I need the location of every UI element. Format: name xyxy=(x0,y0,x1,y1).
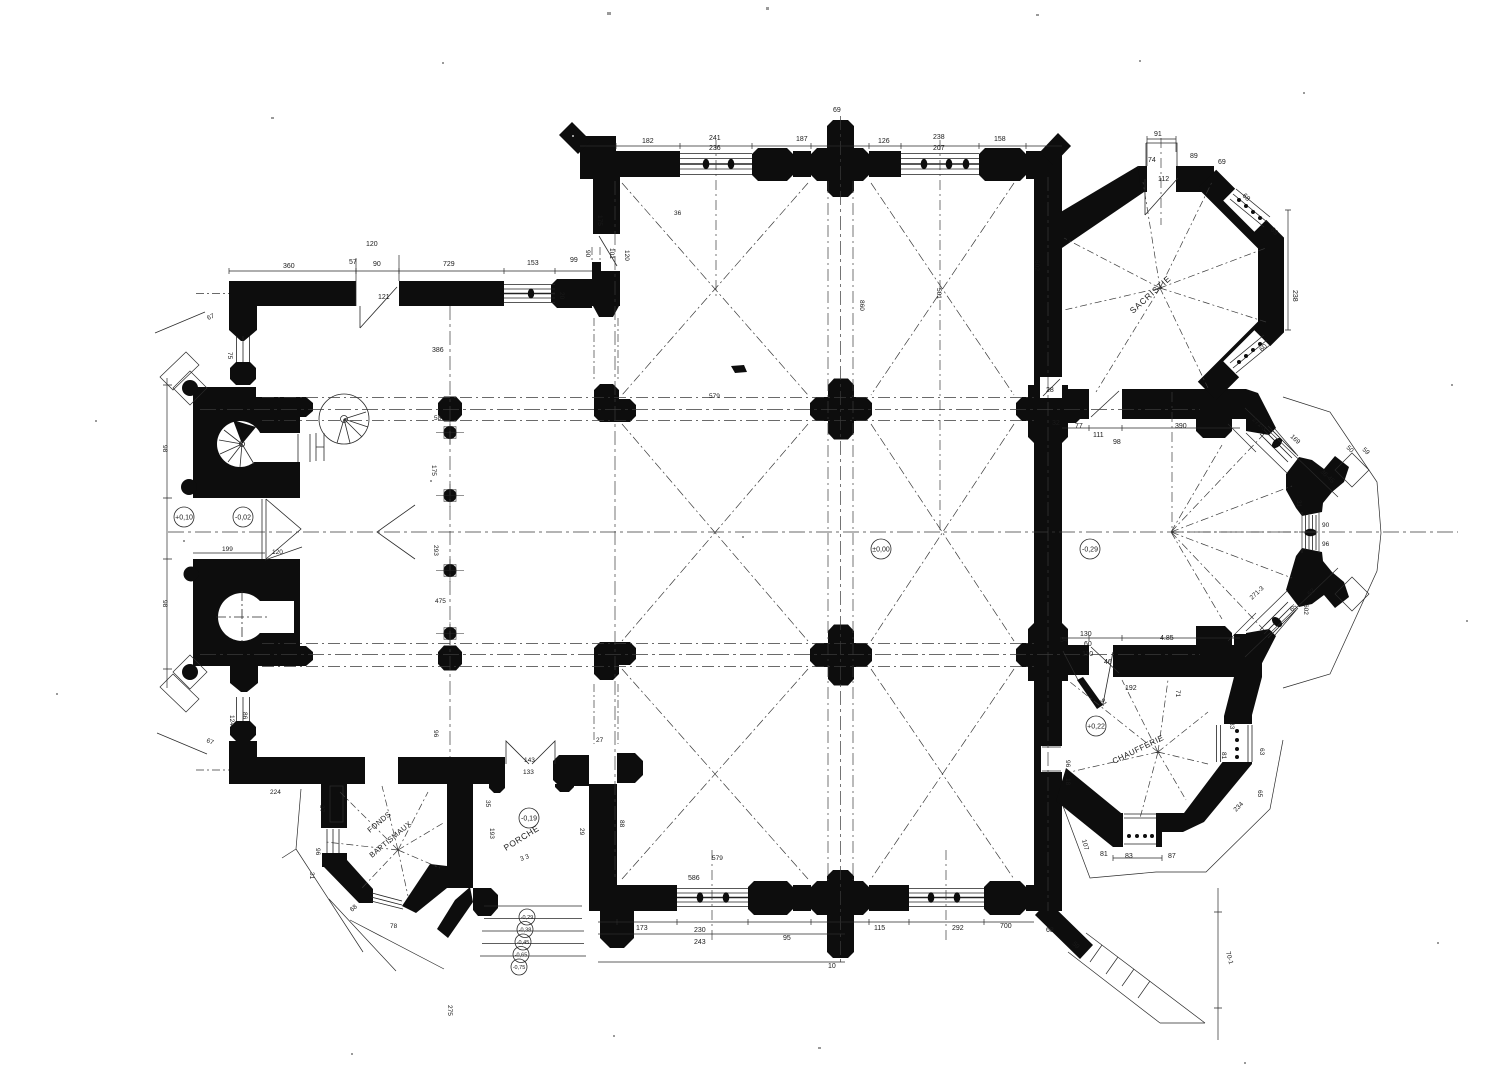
svg-text:243: 243 xyxy=(694,939,706,946)
svg-text:74: 74 xyxy=(1148,157,1156,164)
svg-text:46: 46 xyxy=(1104,659,1112,666)
svg-text:124: 124 xyxy=(228,715,235,726)
svg-text:67: 67 xyxy=(205,737,215,746)
svg-text:83: 83 xyxy=(1125,853,1133,860)
svg-text:602: 602 xyxy=(1033,260,1040,271)
svg-text:95: 95 xyxy=(783,935,791,942)
svg-text:115: 115 xyxy=(874,925,885,932)
svg-text:293: 293 xyxy=(432,545,439,556)
svg-text:241: 241 xyxy=(709,135,721,142)
svg-text:501: 501 xyxy=(935,288,942,299)
svg-text:81: 81 xyxy=(1100,851,1108,858)
svg-text:386: 386 xyxy=(432,347,444,354)
svg-text:54: 54 xyxy=(1060,637,1068,644)
svg-text:-0,29: -0,29 xyxy=(1082,547,1098,554)
svg-text:107: 107 xyxy=(1080,839,1090,852)
svg-text:+0,10: +0,10 xyxy=(175,515,193,522)
svg-text:27: 27 xyxy=(596,737,604,744)
svg-text:158: 158 xyxy=(994,136,1006,143)
svg-text:96: 96 xyxy=(314,848,321,856)
svg-text:70-1: 70-1 xyxy=(1224,951,1234,966)
svg-text:579: 579 xyxy=(712,855,723,862)
svg-text:-0,45: -0,45 xyxy=(517,940,530,946)
svg-text:120: 120 xyxy=(623,250,630,261)
svg-text:96: 96 xyxy=(1064,760,1071,768)
svg-text:133: 133 xyxy=(523,769,534,776)
svg-text:234: 234 xyxy=(1232,801,1245,814)
svg-text:90: 90 xyxy=(584,250,591,258)
svg-text:+0,22: +0,22 xyxy=(1087,724,1105,731)
svg-text:120: 120 xyxy=(366,241,378,248)
svg-text:175: 175 xyxy=(430,465,437,476)
svg-text:4.85: 4.85 xyxy=(1160,635,1174,642)
svg-text:120: 120 xyxy=(272,549,283,556)
svg-text:182: 182 xyxy=(642,138,654,145)
svg-text:860: 860 xyxy=(858,300,865,311)
svg-text:60: 60 xyxy=(1084,641,1092,648)
svg-text:110: 110 xyxy=(1082,651,1093,658)
svg-text:-0,19: -0,19 xyxy=(521,816,537,823)
svg-text:-0,38: -0,38 xyxy=(519,928,532,934)
svg-text:121: 121 xyxy=(378,294,390,301)
svg-text:111: 111 xyxy=(1093,432,1104,439)
svg-text:81: 81 xyxy=(1220,752,1227,760)
svg-text:28: 28 xyxy=(1046,387,1054,394)
svg-text:143: 143 xyxy=(524,757,535,764)
svg-text:98: 98 xyxy=(161,445,168,453)
svg-text:586: 586 xyxy=(688,875,700,882)
svg-text:729: 729 xyxy=(443,261,455,268)
svg-text:87: 87 xyxy=(1168,853,1176,860)
svg-text:-0,02: -0,02 xyxy=(235,515,251,522)
svg-text:50: 50 xyxy=(1345,444,1355,454)
svg-text:CHAUFFERIE: CHAUFFERIE xyxy=(1111,733,1165,766)
svg-text:35: 35 xyxy=(484,800,491,808)
svg-text:475: 475 xyxy=(435,598,446,605)
svg-text:360: 360 xyxy=(283,263,295,270)
svg-text:91: 91 xyxy=(1154,131,1162,138)
svg-text:292: 292 xyxy=(952,925,964,932)
svg-text:199: 199 xyxy=(222,546,233,553)
svg-text:90: 90 xyxy=(1322,522,1330,529)
svg-text:192: 192 xyxy=(1125,685,1137,692)
svg-text:193: 193 xyxy=(488,828,495,839)
svg-text:-0,29: -0,29 xyxy=(521,915,534,921)
svg-text:-0,75: -0,75 xyxy=(513,965,526,971)
svg-text:69: 69 xyxy=(833,107,841,114)
svg-text:68: 68 xyxy=(1046,927,1054,934)
svg-text:275: 275 xyxy=(446,1005,453,1016)
svg-text:68: 68 xyxy=(349,903,359,913)
svg-text:31: 31 xyxy=(308,872,315,880)
svg-text:96: 96 xyxy=(1322,541,1330,548)
svg-text:36: 36 xyxy=(674,210,682,217)
svg-text:238: 238 xyxy=(933,134,945,141)
svg-text:78: 78 xyxy=(390,923,398,930)
svg-text:238: 238 xyxy=(1291,290,1298,302)
svg-text:77: 77 xyxy=(1075,423,1083,430)
svg-text:700: 700 xyxy=(1000,923,1012,930)
svg-text:59: 59 xyxy=(1361,446,1371,456)
svg-text:96: 96 xyxy=(432,730,439,738)
svg-text:3 3: 3 3 xyxy=(519,853,530,863)
svg-text:90: 90 xyxy=(373,261,381,268)
svg-text:SACRISTIE: SACRISTIE xyxy=(1128,273,1173,315)
svg-text:89: 89 xyxy=(1190,153,1198,160)
svg-text:126: 126 xyxy=(878,138,890,145)
svg-text:67: 67 xyxy=(206,313,216,322)
svg-text:58: 58 xyxy=(434,415,442,422)
svg-text:101: 101 xyxy=(608,248,615,259)
svg-text:175: 175 xyxy=(596,215,603,226)
svg-text:37: 37 xyxy=(318,805,325,813)
svg-text:271-3: 271-3 xyxy=(1249,585,1266,602)
svg-text:207: 207 xyxy=(933,145,945,152)
svg-text:86: 86 xyxy=(241,712,248,720)
svg-text:98: 98 xyxy=(1113,439,1121,446)
svg-text:602: 602 xyxy=(1302,604,1309,615)
svg-text:18: 18 xyxy=(1064,778,1071,786)
svg-text:187: 187 xyxy=(796,136,808,143)
svg-text:20: 20 xyxy=(558,292,565,300)
svg-text:98: 98 xyxy=(161,600,168,608)
svg-text:69: 69 xyxy=(1218,159,1226,166)
svg-text:71: 71 xyxy=(1174,690,1181,698)
svg-text:99: 99 xyxy=(570,257,578,264)
svg-text:63: 63 xyxy=(1258,748,1265,756)
svg-text:130: 130 xyxy=(1080,631,1092,638)
svg-text:31: 31 xyxy=(1295,500,1302,508)
svg-text:579: 579 xyxy=(709,393,720,400)
svg-text:88: 88 xyxy=(618,820,625,828)
svg-text:PORCHE: PORCHE xyxy=(502,823,541,853)
svg-text:390: 390 xyxy=(1175,423,1187,430)
svg-text:75: 75 xyxy=(226,352,233,360)
svg-text:112: 112 xyxy=(1158,176,1169,183)
svg-text:10: 10 xyxy=(828,963,836,970)
svg-text:29: 29 xyxy=(578,828,585,836)
svg-text:173: 173 xyxy=(636,925,648,932)
svg-text:57: 57 xyxy=(349,259,357,266)
svg-text:236: 236 xyxy=(709,145,721,152)
svg-text:83: 83 xyxy=(1228,722,1235,730)
svg-text:-0,65: -0,65 xyxy=(515,953,528,959)
svg-text:±0,00: ±0,00 xyxy=(872,547,890,554)
svg-text:230: 230 xyxy=(694,927,706,934)
svg-text:224: 224 xyxy=(270,789,281,796)
svg-text:65: 65 xyxy=(1256,790,1263,798)
svg-text:153: 153 xyxy=(527,260,539,267)
svg-text:32: 32 xyxy=(1052,420,1060,427)
svg-text:169: 169 xyxy=(1289,433,1302,446)
